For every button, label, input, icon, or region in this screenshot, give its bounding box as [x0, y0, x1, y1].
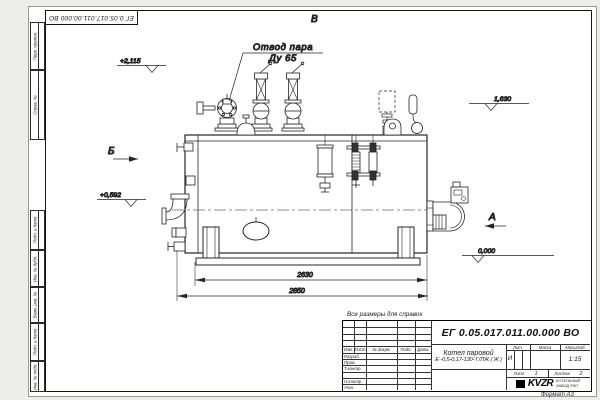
svg-text:+2,115: +2,115 — [120, 58, 141, 65]
lifting-lug — [384, 119, 401, 135]
titleblock-doc-number: ЕГ 0.05.017.011.00.000 ВО — [431, 321, 590, 344]
valve-handwheel — [197, 102, 203, 114]
col-sign: Подп. — [397, 347, 415, 352]
kvzr-logo-icon — [516, 379, 525, 388]
role-nkontr: Н.контр. — [344, 379, 366, 384]
svg-text:2630: 2630 — [296, 272, 313, 279]
front-drain-valve — [174, 242, 185, 251]
svg-text:В: В — [311, 14, 318, 25]
col-doc: № докум. — [366, 347, 397, 352]
level-probe — [409, 95, 423, 134]
safety-valve-2 — [282, 62, 304, 131]
svg-text:2850: 2850 — [288, 288, 305, 295]
elevation-mark-valve-top: +2,115 — [117, 58, 166, 73]
sheets-label: Листов — [550, 371, 574, 376]
sheet-value: 1 — [531, 371, 541, 377]
sheet-label: Лист — [509, 371, 529, 376]
elevation-mark-ground: 0,000 — [462, 248, 554, 263]
view-marker-a: А — [485, 212, 506, 229]
role-tkontr: Т.контр. — [344, 366, 366, 371]
leader-line — [229, 53, 243, 101]
burner — [427, 182, 468, 231]
blueprint-page: { "frame": { "top_doc_number": "ЕГ 0.05.… — [0, 0, 600, 400]
top-manhole-cover — [237, 115, 255, 135]
callout-line1: Отвод пара — [253, 42, 313, 53]
elevation-mark-front-axis: +0,592 — [97, 192, 146, 207]
liter-header: Лит. — [506, 345, 530, 350]
sheets-value: 2 — [576, 371, 586, 377]
product-name-line1: Котел паровой — [443, 350, 493, 357]
svg-text:Б: Б — [108, 146, 115, 157]
elevation-mark-rear-top: 1,630 — [469, 96, 529, 111]
mass-header: Масса — [530, 345, 560, 350]
callout-steam-outlet: Отвод пара Ду 65 — [229, 42, 323, 101]
svg-text:1,630: 1,630 — [494, 96, 511, 103]
role-utv: Утв. — [344, 385, 366, 390]
svg-text:А: А — [488, 212, 496, 223]
col-list: Лист — [354, 347, 366, 352]
front-nozzle — [172, 228, 176, 237]
company-cell: KVZR КОТЕЛЬНЫЙ ЗАВОД РЭП — [506, 377, 590, 390]
blowdown-elbow — [171, 194, 189, 199]
front-tap — [184, 143, 193, 151]
kvzr-logo-text: KVZR — [528, 378, 553, 389]
svg-text:0,000: 0,000 — [478, 248, 495, 255]
burner-motor — [433, 215, 446, 229]
role-razrab: Разраб. — [344, 354, 366, 359]
scale-header: Масштаб — [560, 345, 590, 350]
steam-outlet-valve — [197, 94, 239, 131]
col-izm: Изм. — [343, 347, 354, 352]
title-block: Изм. Лист № докум. Подп. Дата Разраб. Пр… — [342, 320, 592, 392]
svg-text:+0,592: +0,592 — [100, 192, 121, 199]
view-marker-v: В — [311, 14, 318, 25]
role-prov: Пров. — [344, 360, 366, 365]
company-name: КОТЕЛЬНЫЙ ЗАВОД РЭП — [556, 379, 580, 388]
product-name-line2: Е -0,5-0,17-130- Г/ЛЖ ( Ж ) — [435, 357, 501, 363]
view-marker-b: Б — [108, 146, 138, 162]
callout-line2: Ду 65 — [268, 53, 297, 64]
scale-value: 1:15 — [560, 356, 590, 363]
reference-note: Все размеры для справок — [347, 311, 422, 318]
valve-spindle — [203, 106, 215, 110]
front-support — [203, 227, 219, 258]
product-name: Котел паровой Е -0,5-0,17-130- Г/ЛЖ ( Ж … — [431, 344, 506, 369]
col-date: Дата — [415, 347, 431, 352]
liter-value: И — [506, 356, 514, 362]
safety-valve-1 — [250, 62, 272, 131]
rear-support — [398, 227, 414, 258]
front-bracket — [186, 176, 195, 185]
format-note: Формат А3 — [541, 392, 574, 398]
